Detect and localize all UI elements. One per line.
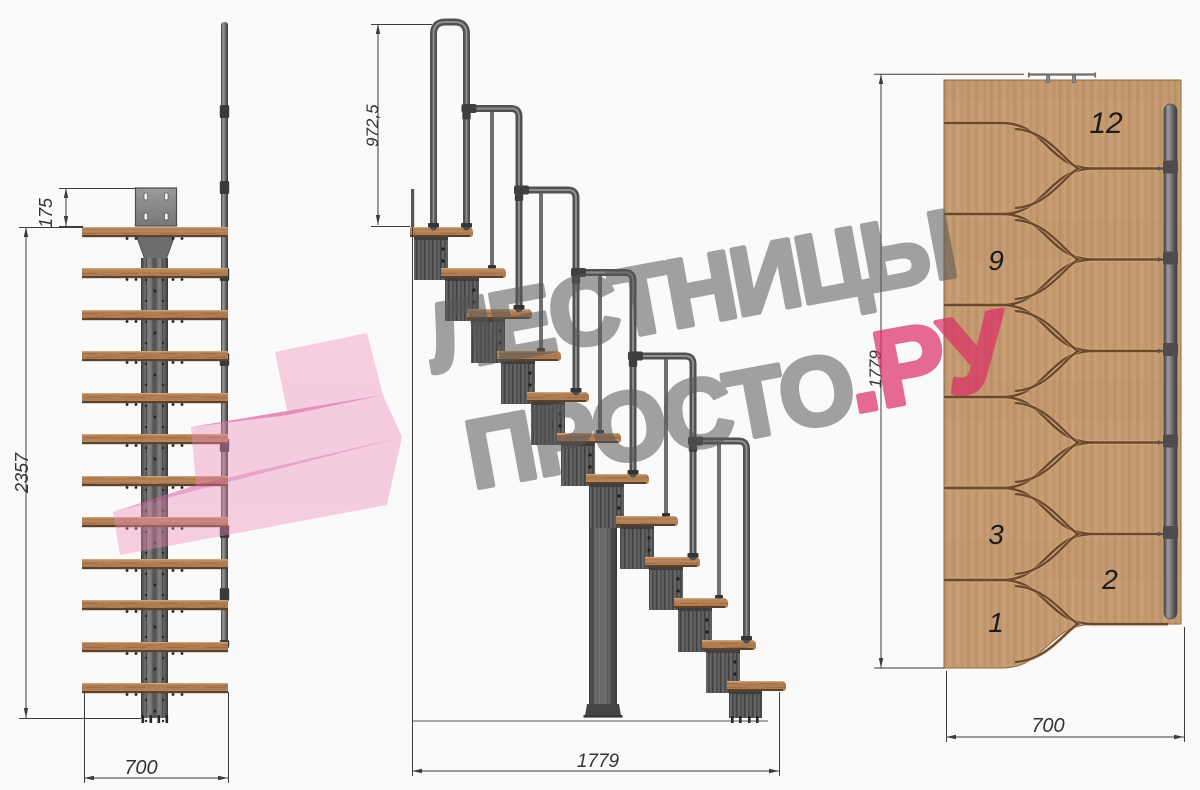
svg-text:972,5: 972,5 [363, 104, 382, 147]
svg-text:12: 12 [1089, 107, 1123, 140]
svg-text:1: 1 [988, 607, 1004, 638]
svg-text:3: 3 [988, 519, 1004, 550]
svg-text:175: 175 [36, 197, 56, 228]
svg-text:1779: 1779 [577, 751, 620, 772]
svg-text:700: 700 [1031, 715, 1064, 737]
svg-text:2: 2 [1101, 564, 1118, 595]
svg-text:700: 700 [124, 757, 157, 779]
svg-text:2357: 2357 [12, 452, 32, 494]
svg-text:9: 9 [988, 245, 1004, 276]
